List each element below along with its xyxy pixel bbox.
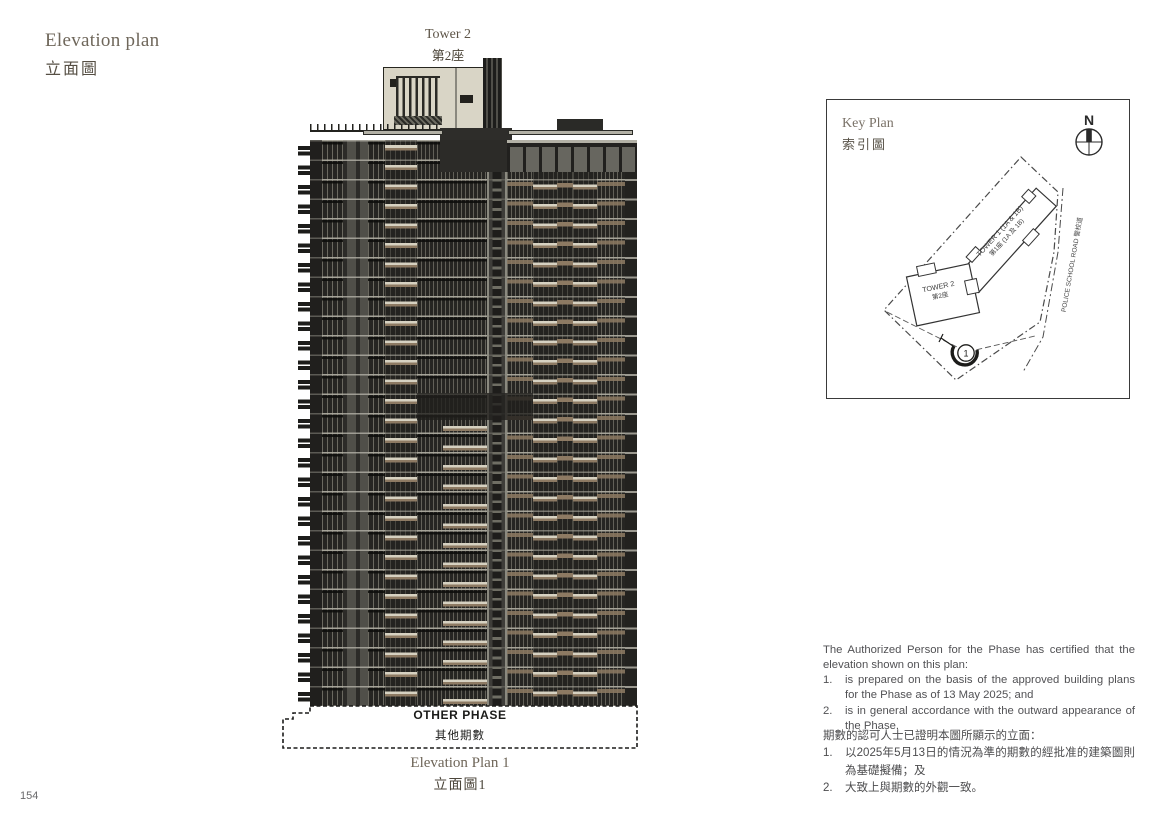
page-title-zh: 立面圖 xyxy=(45,55,159,79)
tower-label-en: Tower 2 xyxy=(368,27,528,43)
certification-en-intro: The Authorized Person for the Phase has … xyxy=(823,643,1135,673)
key-plan: TOWER 1 (1A & 1B) 第1座 (1A 及 1B) TOWER 2 … xyxy=(826,99,1130,399)
tower-label: Tower 2 第2座 xyxy=(368,27,528,64)
list-text: is prepared on the basis of the approved… xyxy=(845,673,1135,703)
page-title-en: Elevation plan xyxy=(45,30,159,52)
facade-bay-balcony xyxy=(443,420,487,706)
roof-lift-overrun xyxy=(483,58,502,138)
elevation-caption-zh: 立面圖1 xyxy=(330,774,590,794)
facade-bay xyxy=(343,140,368,706)
page-number: 154 xyxy=(20,790,38,802)
view-marker: 1 xyxy=(939,334,977,365)
list-marker: 1. xyxy=(823,745,845,780)
roof-louvre xyxy=(396,76,440,118)
tower-label-zh: 第2座 xyxy=(368,45,528,64)
certification-zh-item: 2. 大致上與期數的外觀一致。 xyxy=(823,780,1135,797)
facade-clubhouse-windows xyxy=(507,140,637,172)
facade-bay-balcony xyxy=(385,140,417,706)
elevation-caption-en: Elevation Plan 1 xyxy=(330,755,590,772)
roof-plant-room xyxy=(383,67,497,130)
parapet-cap xyxy=(363,130,443,135)
tower-facade xyxy=(310,140,637,706)
facade-bay xyxy=(597,140,625,706)
key-plan-title: Key Plan 索引圖 xyxy=(842,116,894,153)
other-phase-label-en: OTHER PHASE xyxy=(280,708,640,722)
view-marker-number: 1 xyxy=(963,349,968,359)
list-marker: 1. xyxy=(823,673,845,703)
facade-bay xyxy=(625,140,637,706)
facade-core xyxy=(487,140,507,706)
key-plan-title-en: Key Plan xyxy=(842,116,894,132)
certification-zh-intro: 期數的認可人士已證明本圖所顯示的立面： xyxy=(823,728,1135,745)
list-marker: 2. xyxy=(823,780,845,797)
facade-transfer-band xyxy=(417,393,533,420)
facade-bay xyxy=(322,140,343,706)
facade-bay xyxy=(557,140,573,706)
roof-detail-square xyxy=(460,95,473,103)
certification-en-item: 1. is prepared on the basis of the appro… xyxy=(823,673,1135,703)
facade-top-block xyxy=(440,140,507,172)
list-text: 大致上與期數的外觀一致。 xyxy=(845,780,1135,797)
road-label: POLICE SCHOOL ROAD 警校道 xyxy=(1059,216,1085,313)
roof-divider-line xyxy=(455,68,457,128)
facade-bay xyxy=(368,140,385,706)
left-balcony-tabs xyxy=(298,146,310,704)
north-compass: N xyxy=(1076,112,1102,155)
facade-bay xyxy=(310,140,322,706)
north-label: N xyxy=(1084,112,1094,128)
facade-bay-balcony xyxy=(573,140,597,706)
parapet-cap xyxy=(508,130,633,135)
key-plan-title-zh: 索引圖 xyxy=(842,134,894,153)
other-phase-label-zh: 其他期數 xyxy=(280,727,640,743)
certification-zh-item: 1. 以2025年5月13日的情況為準的期數的經批准的建築圖則為基礎擬備；及 xyxy=(823,745,1135,780)
other-phase-label: OTHER PHASE 其他期數 xyxy=(280,708,640,743)
list-text: 以2025年5月13日的情況為準的期數的經批准的建築圖則為基礎擬備；及 xyxy=(845,745,1135,780)
facade-bay-balcony xyxy=(533,140,557,706)
certification-zh: 期數的認可人士已證明本圖所顯示的立面： 1. 以2025年5月13日的情況為準的… xyxy=(823,728,1135,797)
facade-bay xyxy=(507,140,533,706)
elevation-caption: Elevation Plan 1 立面圖1 xyxy=(330,755,590,794)
page-title: Elevation plan 立面圖 xyxy=(45,30,159,79)
certification-en: The Authorized Person for the Phase has … xyxy=(823,643,1135,734)
brochure-page: Elevation plan 立面圖 Tower 2 第2座 xyxy=(0,0,1156,816)
